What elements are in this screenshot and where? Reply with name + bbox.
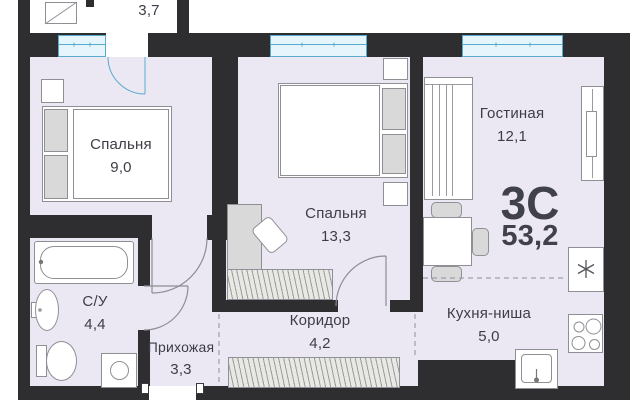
label-living-name: Гостиная: [480, 106, 545, 121]
pillow: [44, 109, 68, 152]
wardrobe: [228, 357, 400, 388]
dining-chair: [431, 202, 462, 218]
balcony-glazing-symbol: [45, 2, 77, 24]
door-jamb: [331, 302, 338, 312]
label-hallway-area: 3,3: [170, 362, 191, 377]
toilet-bowl: [46, 341, 77, 381]
window-living: [462, 35, 563, 57]
door-opening-bathroom: [138, 286, 150, 330]
dining-chair: [472, 228, 489, 256]
cabinet-handle: [586, 111, 597, 157]
label-kitchen-name: Кухня-ниша: [447, 306, 531, 321]
door-opening-bedroom-small: [152, 215, 207, 238]
dining-table: [423, 217, 472, 266]
label-corridor-area: 4,2: [309, 336, 330, 351]
shelf-line: [424, 84, 473, 85]
label-apartment-total-area: 53,2: [501, 222, 558, 251]
shelf-line: [446, 84, 447, 196]
dining-chair: [431, 266, 462, 282]
label-hallway-name: Прихожая: [148, 340, 214, 354]
bed-mattress: [280, 85, 380, 176]
balcony-divider-wall: [86, 0, 94, 7]
window-bedroom-large: [270, 35, 367, 57]
label-bedroom-small-area: 9,0: [110, 160, 131, 175]
door-opening-bedroom-large: [338, 300, 390, 312]
nightstand: [383, 58, 408, 80]
label-bathroom-area: 4,4: [84, 317, 105, 332]
bathtub-inner: [40, 246, 128, 279]
nightstand: [383, 182, 408, 206]
pillow: [382, 88, 406, 130]
pillow: [44, 155, 68, 199]
label-bedroom-small-name: Спальня: [90, 137, 152, 152]
label-corridor-name: Коридор: [290, 313, 351, 328]
kitchen-sink: [521, 354, 552, 383]
shelf-line: [452, 84, 453, 196]
bed-mattress: [73, 109, 169, 199]
shelf-line: [439, 84, 440, 196]
door-jamb: [144, 231, 152, 240]
label-bedroom-large-name: Спальня: [305, 206, 367, 221]
stove: [568, 314, 603, 353]
entrance-door-jamb: [141, 383, 149, 394]
nightstand: [41, 79, 64, 103]
label-kitchen-area: 5,0: [478, 329, 499, 344]
washing-machine-drum: [110, 361, 129, 380]
wardrobe: [227, 269, 333, 300]
shelf-line: [432, 84, 433, 196]
entrance-door-gap: [149, 386, 196, 400]
label-balcony-area: 3,7: [138, 3, 159, 18]
pillow: [382, 134, 406, 174]
label-bedroom-large-area: 13,3: [321, 229, 351, 244]
floor-plan: 3,7 Спальня 9,0 Спальня 13,3 Гостиная 12…: [0, 0, 640, 400]
door-jamb: [207, 231, 215, 240]
kitchen-wall-step: [418, 360, 515, 386]
window-bedroom-small: [58, 35, 105, 57]
label-bathroom-name: С/У: [82, 294, 107, 309]
fridge: [568, 247, 604, 292]
label-living-area: 12,1: [497, 129, 527, 144]
balcony-door-opening: [106, 33, 148, 57]
bathroom-sink: [35, 289, 59, 331]
entrance-door-jamb: [196, 383, 204, 394]
